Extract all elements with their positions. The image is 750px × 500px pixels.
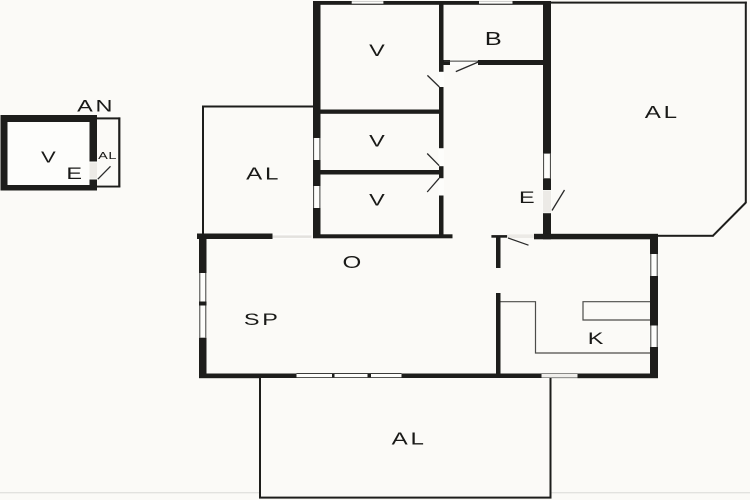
svg-text:E: E [519,188,535,207]
svg-text:AL: AL [645,103,680,122]
svg-text:O: O [343,253,362,272]
svg-text:AN: AN [77,97,115,116]
svg-text:V: V [369,41,385,60]
svg-text:AL: AL [392,430,427,449]
svg-text:SP: SP [244,310,281,329]
svg-text:AL: AL [246,164,281,183]
svg-text:E: E [66,164,82,183]
svg-text:V: V [369,191,385,210]
svg-text:K: K [588,329,604,348]
svg-text:V: V [41,149,56,166]
svg-text:AL: AL [98,150,117,162]
svg-text:V: V [369,132,385,151]
svg-text:B: B [485,28,502,49]
